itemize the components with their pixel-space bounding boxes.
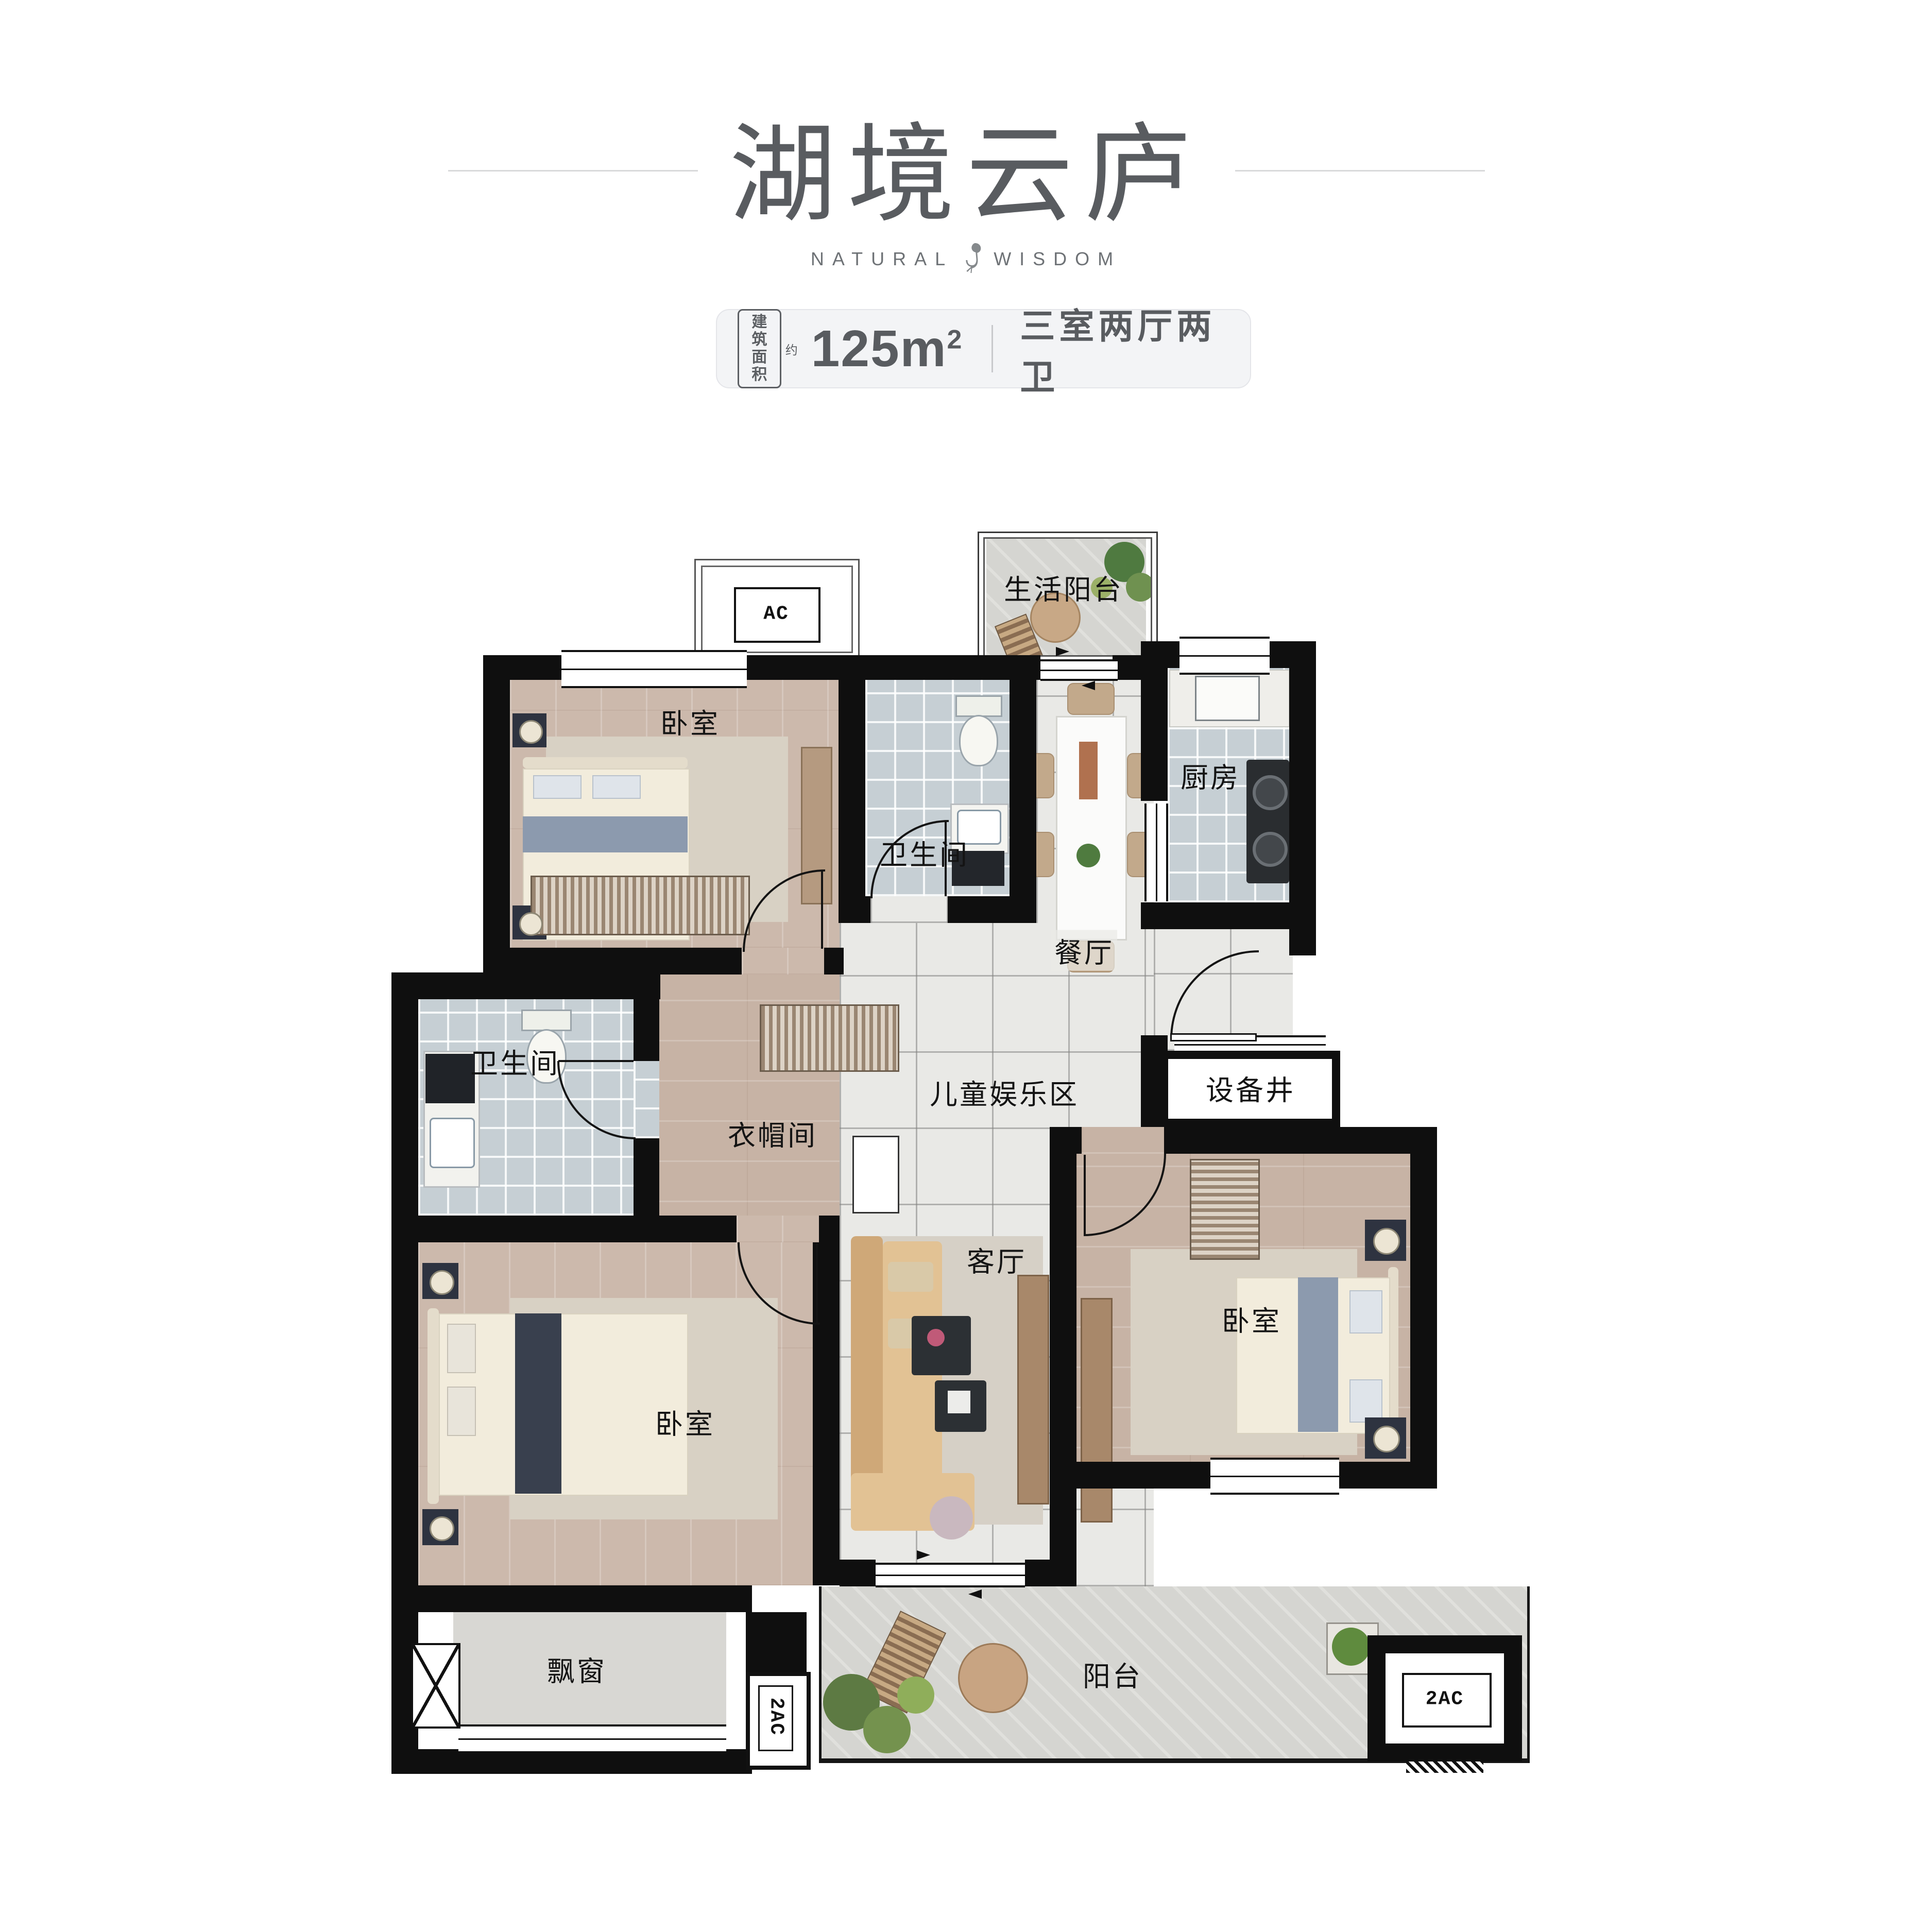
- room-label-bedroom-top: 卧室: [660, 701, 720, 742]
- plant-icon: [1076, 844, 1100, 867]
- bed-headboard: [523, 757, 688, 768]
- hatch-strip: [1406, 1762, 1483, 1773]
- ac-label: AC: [763, 603, 789, 625]
- pillow: [447, 1324, 476, 1373]
- wall: [391, 1216, 660, 1242]
- burner-icon: [1253, 775, 1288, 810]
- table-tray: [1079, 742, 1098, 799]
- tv-console: [1017, 1275, 1049, 1504]
- wall: [391, 972, 660, 999]
- lamp: [430, 1516, 454, 1541]
- toilet: [959, 715, 998, 766]
- wall: [1025, 1560, 1050, 1586]
- toilet-tank: [955, 695, 1002, 717]
- room-label-bathroom-top: 卫生间: [880, 832, 969, 873]
- door-leaf: [558, 1060, 634, 1062]
- area-tag-line2: 面积: [744, 349, 775, 384]
- lamp: [430, 1270, 454, 1295]
- pillow: [447, 1387, 476, 1436]
- wall: [1010, 655, 1036, 923]
- area-tag-line1: 建筑: [744, 314, 775, 349]
- wall: [839, 655, 865, 896]
- area-value: 125m2: [811, 319, 963, 379]
- toilet-tank: [521, 1010, 572, 1031]
- lamp: [519, 912, 543, 936]
- room-label-living: 客厅: [967, 1239, 1027, 1280]
- tray: [948, 1391, 970, 1413]
- door-opening: [1082, 1127, 1164, 1154]
- room-label-balcony: 阳台: [1083, 1654, 1142, 1695]
- plant-icon: [1332, 1628, 1370, 1666]
- title-divider-right: [1235, 170, 1485, 172]
- wall: [1050, 1127, 1076, 1586]
- bed-runner: [523, 816, 688, 852]
- bath-vanity: [425, 1054, 475, 1103]
- door-leaf: [821, 870, 823, 949]
- coffee-table: [912, 1316, 971, 1375]
- wardrobe: [531, 876, 750, 935]
- plant-icon: [897, 1677, 934, 1714]
- brand-left-text: NATURAL: [811, 248, 953, 270]
- sink: [430, 1118, 475, 1168]
- door-leaf: [1084, 1155, 1086, 1234]
- pillow: [533, 775, 582, 799]
- wall: [840, 1560, 876, 1586]
- room-label-utility-shaft: 设备井: [1206, 1068, 1295, 1108]
- room-label-bedroom-left: 卧室: [655, 1401, 715, 1442]
- wardrobe: [1190, 1159, 1260, 1260]
- bed-headboard: [428, 1308, 439, 1504]
- burner-icon: [1253, 832, 1288, 867]
- kitchen-sink: [1195, 676, 1260, 721]
- brand-subtitle: NATURAL WISDOM: [811, 241, 1121, 277]
- x-window: [411, 1643, 460, 1729]
- layout-text: 三室两厅两卫: [1020, 298, 1250, 400]
- spec-badge: 建筑 面积 约 125m2 三室两厅两卫: [716, 309, 1251, 388]
- pillow: [592, 775, 641, 799]
- desk: [852, 1136, 899, 1213]
- wall: [1410, 1127, 1437, 1489]
- flower-icon: [927, 1329, 945, 1346]
- area-approx: 约: [785, 340, 798, 358]
- window: [1210, 1458, 1339, 1495]
- ac-label: 2AC: [1426, 1688, 1464, 1711]
- room-label-bedroom-right: 卧室: [1222, 1298, 1281, 1339]
- sofa-back: [851, 1236, 883, 1494]
- floorplan-page: 湖境云庐 NATURAL WISDOM 建筑 面积 约 125m2 三室两厅两卫: [0, 0, 1932, 1932]
- bed-runner: [515, 1313, 561, 1494]
- room-label-kids-zone: 儿童娱乐区: [930, 1072, 1079, 1113]
- wall: [1015, 655, 1040, 680]
- pouf: [930, 1496, 973, 1540]
- ac-label: 2AC: [765, 1698, 788, 1736]
- door-leaf: [816, 1243, 818, 1323]
- room-label-life-balcony: 生活阳台: [1004, 567, 1123, 608]
- area-unit-sup: 2: [947, 324, 963, 354]
- wall: [1289, 641, 1316, 930]
- sofa-pillow: [888, 1262, 933, 1292]
- bed: [439, 1313, 688, 1496]
- door-opening: [870, 896, 948, 923]
- room-label-kitchen: 厨房: [1181, 755, 1240, 796]
- pillow: [1349, 1290, 1382, 1333]
- badge-divider: [991, 325, 993, 372]
- door-opening: [634, 1061, 659, 1138]
- wall: [1141, 902, 1316, 929]
- area-tag: 建筑 面积: [738, 309, 781, 388]
- wall: [746, 1612, 807, 1672]
- brand-right-text: WISDOM: [994, 248, 1121, 270]
- bed-runner: [1298, 1277, 1338, 1432]
- door-opening: [737, 1216, 819, 1242]
- wall: [1113, 655, 1168, 680]
- lamp: [519, 720, 543, 744]
- round-table: [958, 1643, 1028, 1713]
- sliding-door: [1040, 659, 1118, 681]
- flamingo-icon: [963, 241, 984, 277]
- slide-arrow-icon: [968, 1589, 982, 1599]
- window: [1179, 637, 1270, 675]
- wall: [391, 1585, 752, 1612]
- title-divider-left: [448, 170, 698, 172]
- sliding-door: [1144, 803, 1168, 901]
- page-title: 湖境云庐: [729, 88, 1203, 243]
- tv-console: [1081, 1298, 1113, 1523]
- window: [561, 650, 747, 688]
- slide-arrow-icon: [917, 1550, 930, 1560]
- pillow: [1349, 1379, 1382, 1423]
- room-label-cloakroom: 衣帽间: [728, 1113, 817, 1154]
- room-label-bay-window: 飘窗: [547, 1649, 607, 1689]
- slide-arrow-icon: [1082, 681, 1095, 690]
- entry-door-leaf: [1170, 1033, 1257, 1041]
- wardrobe: [760, 1004, 899, 1072]
- wall: [483, 655, 510, 974]
- room-label-bathroom-left: 卫生间: [470, 1041, 560, 1082]
- wall: [1289, 930, 1316, 955]
- lamp: [1373, 1426, 1400, 1452]
- room-label-dining: 餐厅: [1051, 930, 1117, 971]
- plant-icon: [863, 1706, 911, 1753]
- window: [458, 1724, 726, 1753]
- slide-arrow-icon: [1056, 647, 1069, 656]
- lamp: [1373, 1228, 1400, 1255]
- sliding-door: [876, 1563, 1025, 1587]
